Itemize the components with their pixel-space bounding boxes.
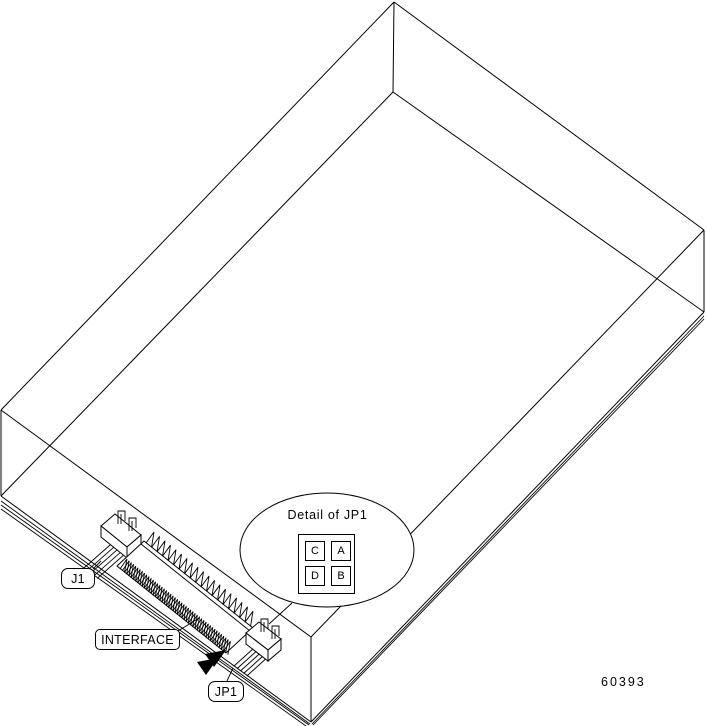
jumper-cell-a: A [331,541,351,561]
j1-label: J1 [61,568,95,589]
jp1-detail-block: C A D B [298,534,355,594]
drive-outline [1,2,704,722]
interface-label: INTERFACE [95,629,180,650]
figure-number: 60393 [601,675,661,691]
jumper-cell-c: C [305,541,325,561]
jumper-cell-d: D [305,566,325,586]
jumper-cell-b: B [331,566,351,586]
drive-line-drawing [0,0,707,726]
detail-title: Detail of JP1 [257,508,398,523]
figure-drive-isometric: J1 INTERFACE JP1 Detail of JP1 C A D B 6… [0,0,707,726]
jp1-label: JP1 [208,681,244,702]
